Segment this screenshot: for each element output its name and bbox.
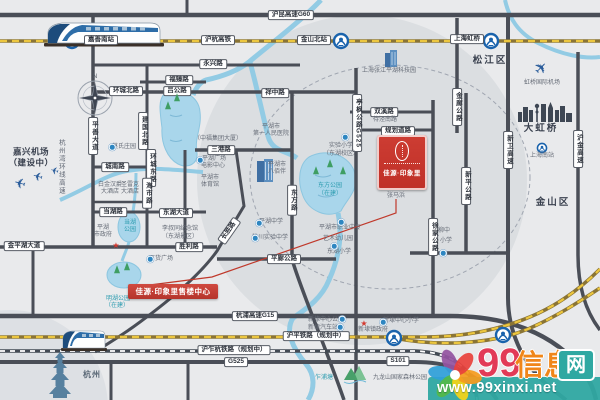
road-label: 福臻路 — [165, 75, 193, 85]
road-label: 胜利路 — [175, 242, 203, 252]
sales-center-banner: 佳源·印象里售楼中心 — [128, 284, 218, 299]
poi-label: （东湖景区） — [162, 234, 198, 240]
road-label: 嘉善南站 — [84, 35, 118, 45]
region-label: 大虹桥 — [524, 124, 559, 134]
poi-label: 圣雷克 — [121, 182, 139, 188]
road-label: 平廊公路 — [267, 254, 301, 264]
labels-layer: 沪昆高速G60沪杭高铁嘉善南站金山北站上海虹桥永兴路福臻路吕公路环城北路祥中路双… — [0, 0, 600, 400]
road-label: 沪杭高铁 — [201, 35, 235, 45]
bus-stop-icon — [339, 316, 346, 323]
tree-icon — [114, 265, 120, 273]
poi-label: 上海南站 — [530, 153, 554, 159]
airplane-icon: ✈ — [13, 175, 28, 192]
road-label: 三港路 — [207, 145, 235, 155]
road-label: 杭浦高速G15 — [232, 311, 278, 321]
poi-label: 艺术幼儿园 — [323, 236, 353, 242]
region-label: 松江区 — [473, 56, 508, 66]
government-star-icon: ★ — [112, 242, 119, 250]
poi-label: （中福集团大厦） — [194, 136, 242, 142]
road-label: 沪乍杭铁路（规划中） — [198, 345, 271, 355]
airplane-icon: ✈ — [532, 59, 553, 80]
road-label: S101 — [386, 356, 409, 366]
road-label: 亭枫公路G525 — [352, 94, 362, 152]
bus-stop-icon — [256, 220, 263, 227]
poi-label: 新埭汽车站 — [308, 325, 338, 331]
poi-label: 李叔同纪念馆 — [162, 226, 198, 232]
bus-stop-icon — [342, 134, 349, 141]
poi-label: 张马浜 — [387, 193, 405, 199]
park-label: （在建） — [105, 303, 129, 309]
bus-stop-icon — [440, 250, 447, 257]
road-label: 沪金高速 — [573, 130, 583, 168]
tree-icon — [327, 159, 333, 167]
road-label: 金廊公路 — [452, 88, 462, 126]
road-label: 当湖路 — [99, 207, 127, 217]
poi-label: 电影中心 — [201, 163, 225, 169]
poi-label: 平湖市职业中专 — [319, 225, 361, 231]
poi-label: 莫氏庄园 — [112, 144, 136, 150]
bus-stop-icon — [331, 243, 338, 250]
road-label: 平善大道 — [88, 117, 98, 155]
road-label: 建国北路 — [138, 112, 148, 150]
region-label: 金山区 — [536, 198, 571, 208]
bus-stop-icon — [380, 319, 387, 326]
park-label: 公园 — [124, 227, 136, 233]
poi-label: 柳中 — [438, 228, 450, 234]
road-label: G525 — [224, 357, 248, 367]
poi-label: 九龙山国家森林公园 — [373, 375, 427, 381]
watermark-wang: 网 — [557, 349, 595, 381]
project-logo-name: 佳源·印象里 — [377, 167, 427, 177]
government-star-icon: ★ — [360, 320, 367, 328]
road-label: 环城北路 — [109, 86, 143, 96]
poi-label: （东湖校区） — [323, 151, 359, 157]
road-label: 长胜路 — [217, 217, 241, 245]
road-label: 沪昆高速G60 — [268, 10, 314, 20]
park-label: 当湖 — [124, 220, 136, 226]
poi-label: 体育馆 — [201, 182, 219, 188]
poi-label: 虹桥国际机场 — [524, 80, 560, 86]
poi-label: 新埭中心小学 — [383, 318, 419, 324]
poi-label: 小学 — [440, 238, 452, 244]
poi-label: 平湖市 — [268, 162, 286, 168]
bus-stop-icon — [338, 219, 345, 226]
poi-label: 平湖中学 — [259, 219, 283, 225]
road-label: 海市路 — [142, 178, 152, 209]
tree-icon — [340, 166, 346, 174]
poi-label: 八佰伴 — [268, 169, 286, 175]
road-label: 城南路 — [101, 162, 129, 172]
poi-label: 待泾南路 — [373, 117, 397, 123]
region-label: 嘉兴机场 — [13, 148, 49, 157]
poi-label: 平湖广场 — [202, 156, 226, 162]
bus-stop-icon — [109, 144, 116, 151]
road-label: 东湖大道 — [159, 208, 193, 218]
road-label: 徐家公路 — [428, 218, 438, 256]
road-label: 永兴路 — [199, 59, 227, 69]
logo-divider — [384, 163, 420, 164]
road-label: 上海虹桥 — [450, 34, 484, 44]
park-label: 乍浦塘 — [315, 375, 333, 381]
park-label: （在建） — [318, 191, 342, 197]
bus-stop-icon — [197, 157, 204, 164]
road-label: 沪平铁路（规划中） — [283, 331, 350, 341]
tree-icon — [313, 166, 319, 174]
road-label: 祥中路 — [261, 88, 289, 98]
road-label: 金山北站 — [297, 35, 331, 45]
poi-label: 实验小学 — [329, 143, 353, 149]
park-label: 东方公园 — [318, 183, 342, 189]
road-label: 新平公路 — [461, 167, 471, 205]
bus-stop-icon — [252, 235, 259, 242]
poi-label: 市政府 — [94, 232, 112, 238]
city-label: 杭州 — [83, 371, 101, 379]
tree-icon — [174, 93, 180, 101]
watermark-url: www.99xinxi.net — [437, 380, 557, 396]
region-label: （建设中） — [8, 159, 53, 168]
poi-label: 上海张江平湖科技园 — [362, 68, 416, 74]
project-emblem-icon — [395, 141, 409, 161]
poi-label: 平湖 — [97, 225, 109, 231]
road-label: 新卫高速 — [503, 131, 513, 169]
project-logo-card: 佳源·印象里 — [377, 135, 427, 190]
road-label: 双溪路 — [370, 107, 398, 117]
road-label: 东方路 — [287, 185, 297, 216]
tree-icon — [165, 101, 171, 109]
park-label: 明湖公园 — [106, 296, 130, 302]
bus-stop-icon — [147, 256, 154, 263]
poi-label: 平湖市 — [201, 175, 219, 181]
poi-label: 第一人民医院 — [253, 131, 289, 137]
airplane-icon: ✈ — [32, 169, 45, 183]
poi-label: 白金汉爵 — [98, 182, 122, 188]
poi-label: 大酒店 — [121, 189, 139, 195]
road-label: 金平湖大道 — [4, 241, 45, 251]
poi-label: 平湖市 — [262, 124, 280, 130]
tree-icon — [124, 262, 130, 270]
bus-stop-icon — [337, 324, 344, 331]
poi-label: 大酒店 — [101, 189, 119, 195]
poi-label: 东湖小学 — [327, 249, 351, 255]
location-map: N — [0, 0, 600, 400]
